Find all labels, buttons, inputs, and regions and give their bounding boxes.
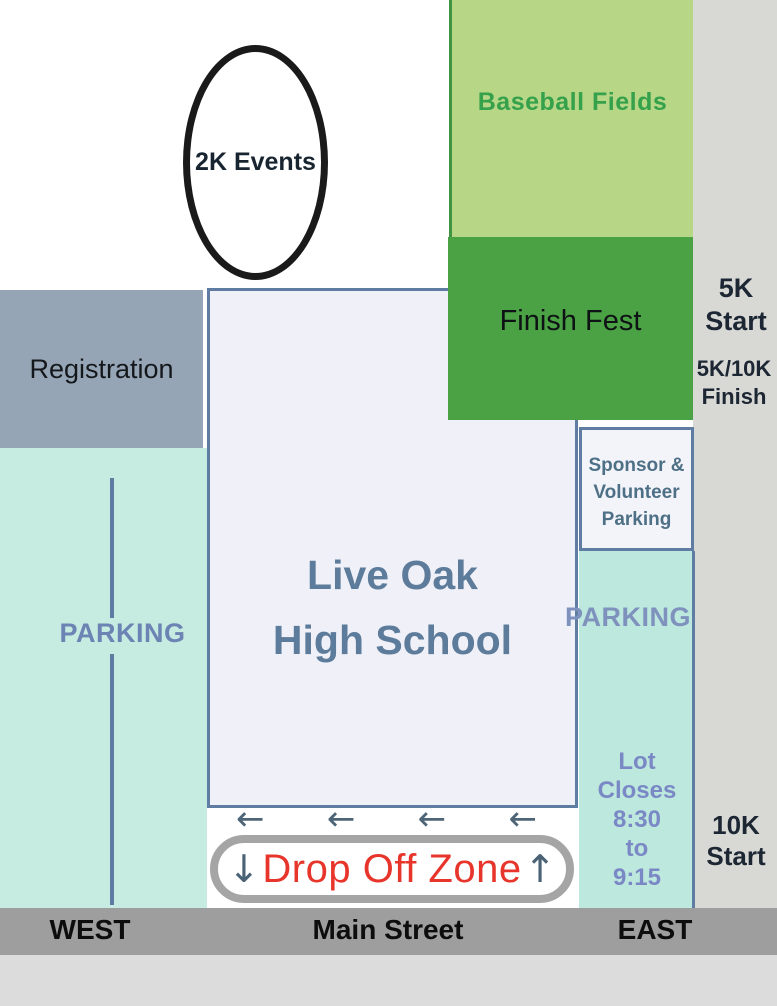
baseball-fields-label: Baseball Fields <box>452 0 693 117</box>
lot-closes-line5: 9:15 <box>581 863 693 892</box>
ten-k-start-line2: Start <box>695 841 777 872</box>
region-registration: Registration <box>0 290 203 448</box>
down-arrow-icon: ↓ <box>228 850 260 888</box>
school-name-line2: High School <box>210 608 575 673</box>
ten-k-start-line1: 10K <box>695 810 777 841</box>
sponsor-label-line2: Volunteer <box>582 479 691 506</box>
five-k-start-line1: 5K <box>695 272 777 305</box>
street-name-label: Main Street <box>288 914 488 946</box>
region-sponsor-volunteer-parking: Sponsor & Volunteer Parking <box>579 427 694 551</box>
east-parking-label: PARKING <box>558 602 698 633</box>
west-parking-divider-line-top <box>110 478 114 618</box>
ten-k-start-label: 10K Start <box>695 810 777 872</box>
region-finish-fest: Finish Fest <box>448 237 693 420</box>
left-arrow-icon: ← <box>508 802 537 836</box>
region-baseball-fields: Baseball Fields <box>449 0 693 238</box>
finish-fest-label: Finish Fest <box>448 237 693 338</box>
sponsor-label-line1: Sponsor & <box>582 452 691 479</box>
drop-off-zone-capsule: ↓ Drop Off Zone ↑ <box>210 835 574 903</box>
up-arrow-icon: ↑ <box>524 850 556 888</box>
five-ten-k-finish-line1: 5K/10K <box>691 355 777 383</box>
school-name-line1: Live Oak <box>210 543 575 608</box>
event-venue-map: Baseball Fields Finish Fest Live Oak Hig… <box>0 0 777 1006</box>
west-parking-divider-line-bottom <box>110 654 114 905</box>
traffic-direction-arrows: ← ← ← ← <box>236 802 537 836</box>
street-east-label: EAST <box>605 914 705 946</box>
left-arrow-icon: ← <box>327 802 356 836</box>
left-arrow-icon: ← <box>236 802 265 836</box>
sponsor-label-line3: Parking <box>582 506 691 533</box>
lot-closes-line2: Closes <box>581 776 693 805</box>
lot-closes-line3: 8:30 <box>581 805 693 834</box>
street-west-label: WEST <box>40 914 140 946</box>
five-ten-k-finish-label: 5K/10K Finish <box>691 355 777 411</box>
drop-off-zone-label: Drop Off Zone <box>262 847 521 892</box>
region-west-parking <box>0 448 207 908</box>
two-k-events-ellipse: 2K Events <box>183 45 328 280</box>
two-k-events-label: 2K Events <box>195 148 316 177</box>
sponsor-parking-label: Sponsor & Volunteer Parking <box>582 430 691 533</box>
east-roadside-area <box>693 0 777 908</box>
left-arrow-icon: ← <box>418 802 447 836</box>
five-k-start-label: 5K Start <box>695 272 777 338</box>
five-ten-k-finish-line2: Finish <box>691 383 777 411</box>
lot-closes-line1: Lot <box>581 747 693 776</box>
registration-label: Registration <box>29 354 173 385</box>
lot-closes-notice: Lot Closes 8:30 to 9:15 <box>581 747 693 892</box>
main-street-bar: WEST Main Street EAST <box>0 908 777 955</box>
south-roadside-area <box>0 955 777 1006</box>
lot-closes-line4: to <box>581 834 693 863</box>
west-parking-label: PARKING <box>30 618 215 649</box>
five-k-start-line2: Start <box>695 305 777 338</box>
